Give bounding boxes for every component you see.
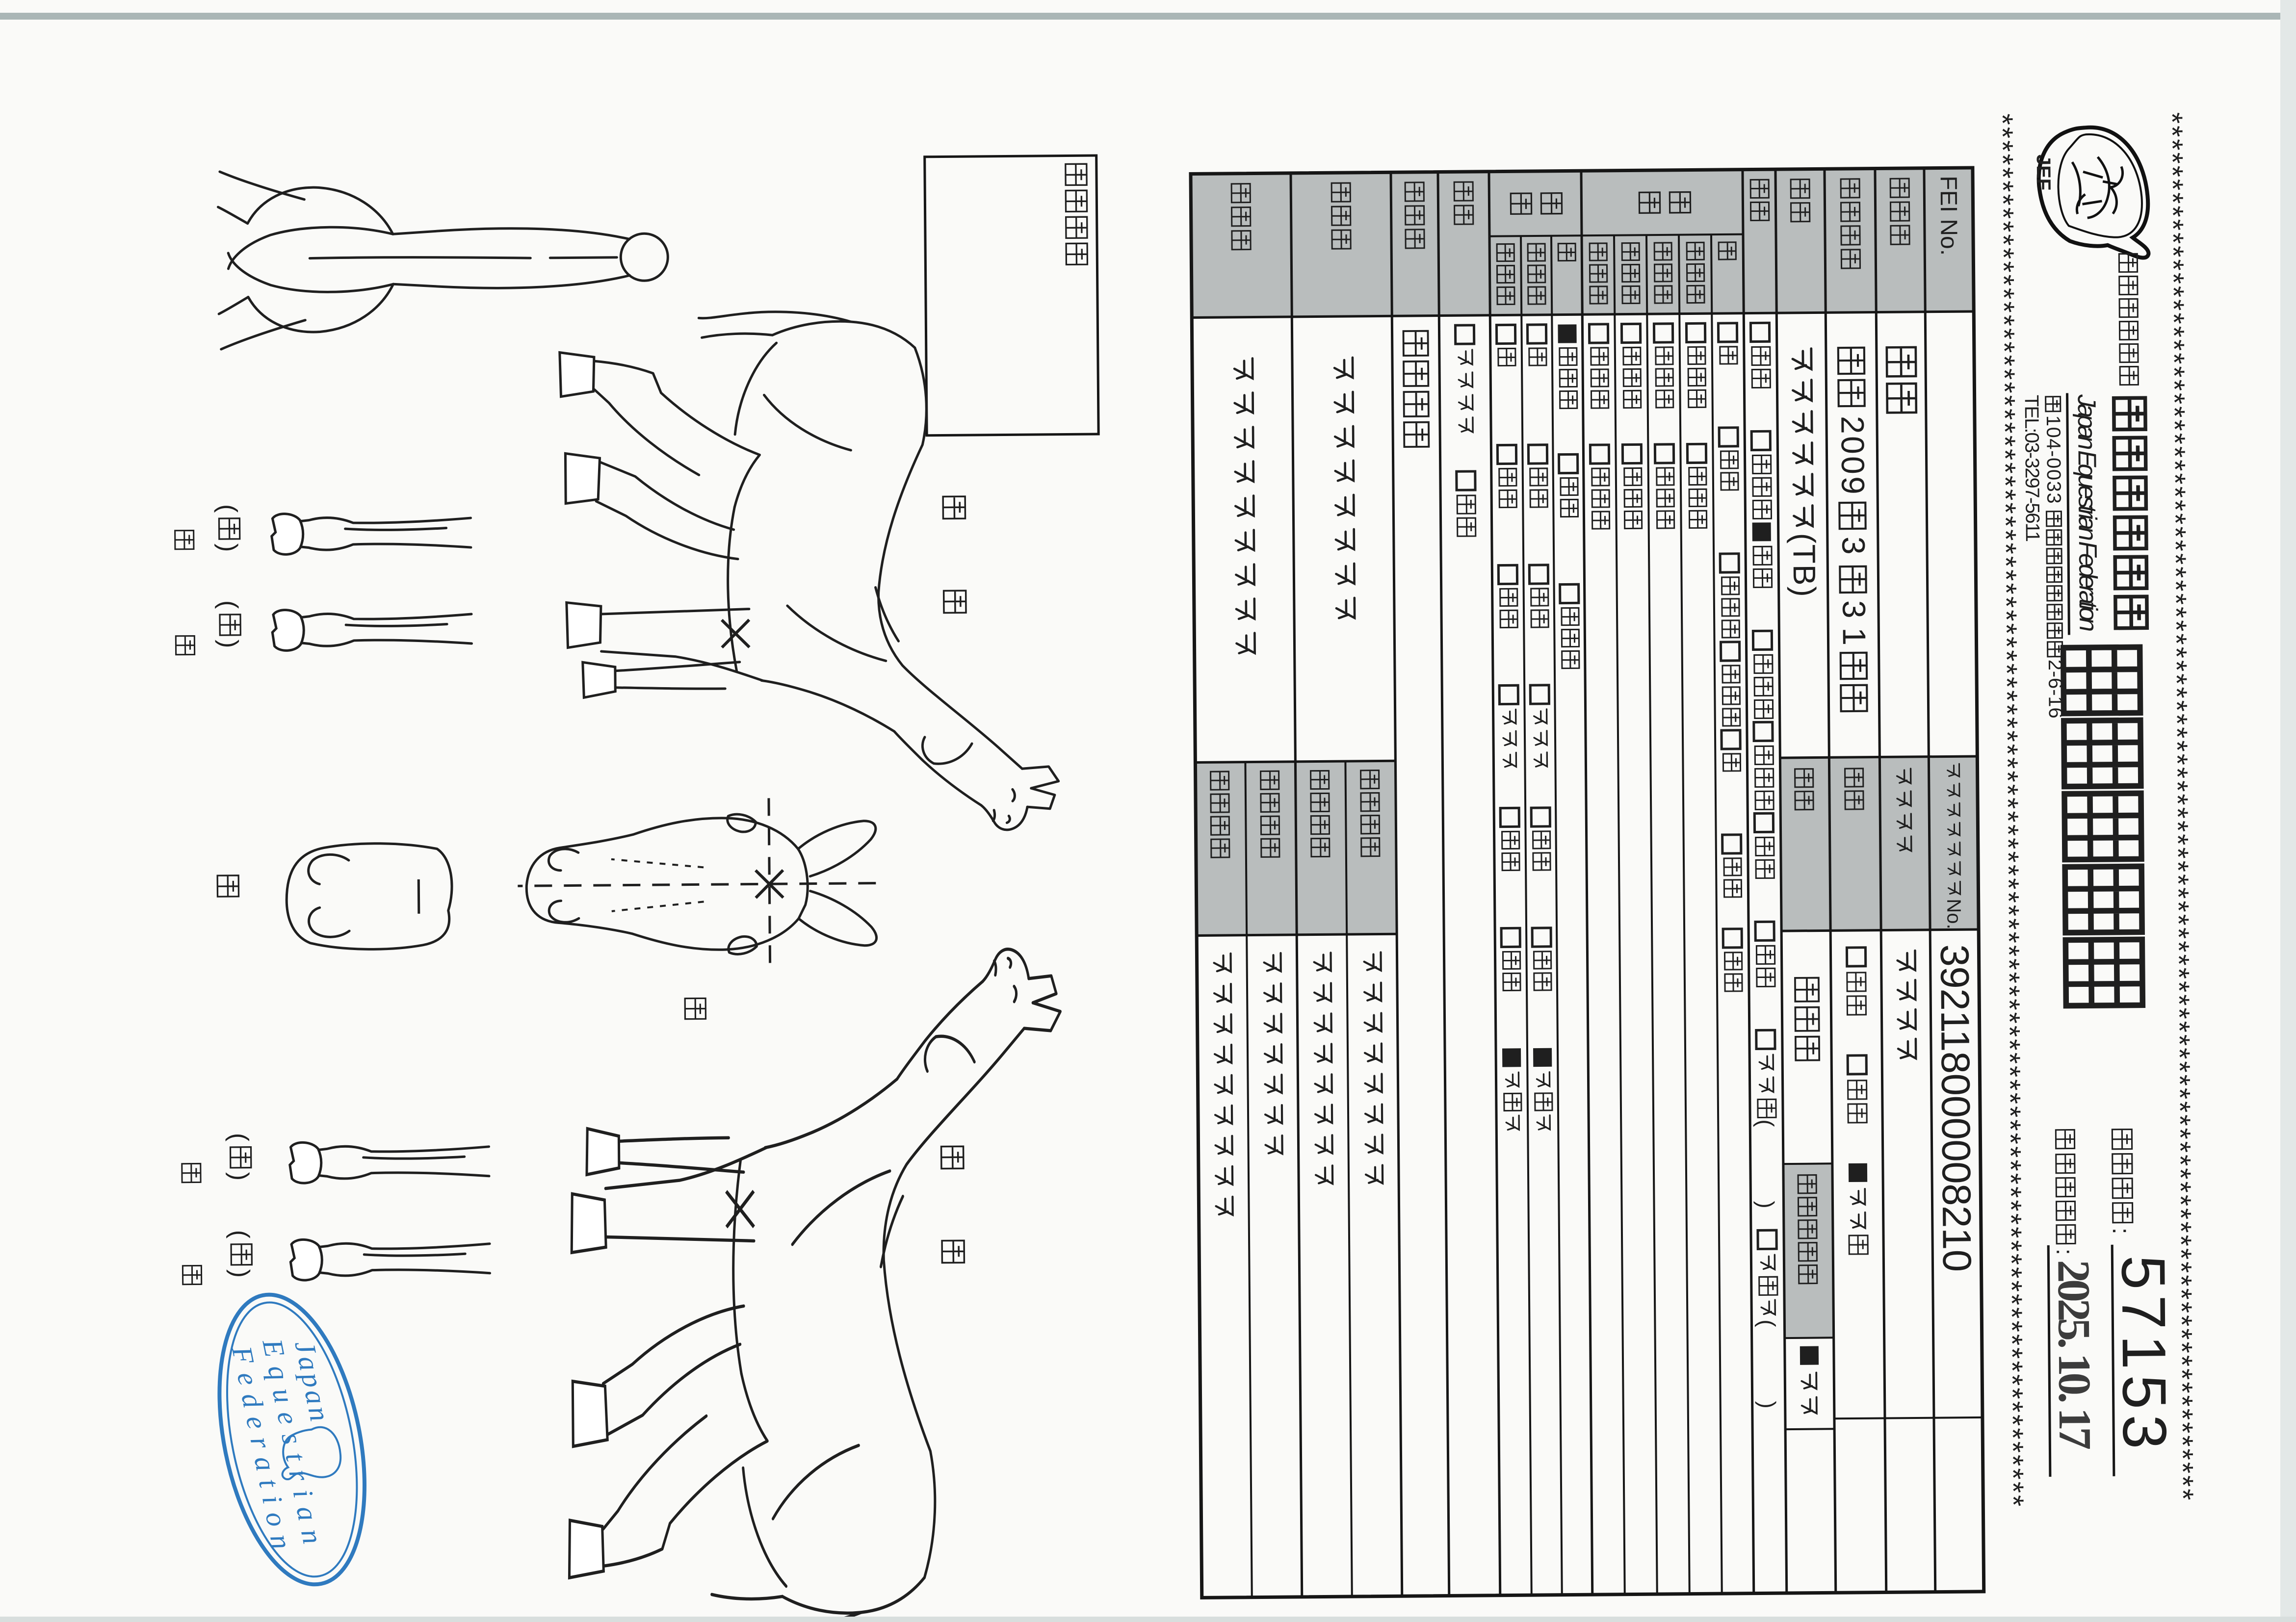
svg-text:(: ( (225, 1133, 253, 1142)
svg-text:(: ( (214, 600, 243, 609)
svg-text:No.: No. (1943, 899, 1964, 929)
svg-text:104-0033: 104-0033 (2042, 415, 2064, 504)
svg-text:******************************: ****************************************… (1986, 113, 2030, 1506)
svg-text:): ) (225, 1172, 254, 1181)
svg-text:(TB): (TB) (1786, 533, 1822, 597)
svg-text:(: ( (1753, 1119, 1778, 1127)
svg-text:FEI No.: FEI No. (1935, 176, 1962, 256)
svg-text:2009: 2009 (1834, 416, 1871, 495)
svg-text:): ) (1755, 1401, 1780, 1409)
svg-text:JEF: JEF (2033, 154, 2055, 191)
svg-text:3: 3 (1835, 537, 1872, 555)
svg-text:(: ( (226, 1230, 254, 1239)
svg-text:TEL:03-3297-5611: TEL:03-3297-5611 (2021, 395, 2043, 542)
svg-text::: : (2108, 1227, 2135, 1234)
svg-text:): ) (214, 543, 242, 552)
svg-text:2025. 10. 17: 2025. 10. 17 (2048, 1260, 2100, 1450)
svg-text::: : (2051, 1248, 2077, 1255)
svg-text:(: ( (1754, 1319, 1780, 1327)
svg-text:): ) (226, 1269, 254, 1278)
svg-text:): ) (1753, 1201, 1779, 1209)
svg-text:31: 31 (1836, 600, 1873, 646)
svg-text:): ) (214, 640, 243, 648)
svg-text:5 7 1 5 3: 5 7 1 5 3 (2109, 1255, 2179, 1449)
svg-text:(: ( (213, 504, 242, 513)
svg-text:392118000008210: 392118000008210 (1932, 944, 1979, 1272)
svg-text:Japan Equestrian Federation: Japan Equestrian Federation (2072, 394, 2103, 632)
